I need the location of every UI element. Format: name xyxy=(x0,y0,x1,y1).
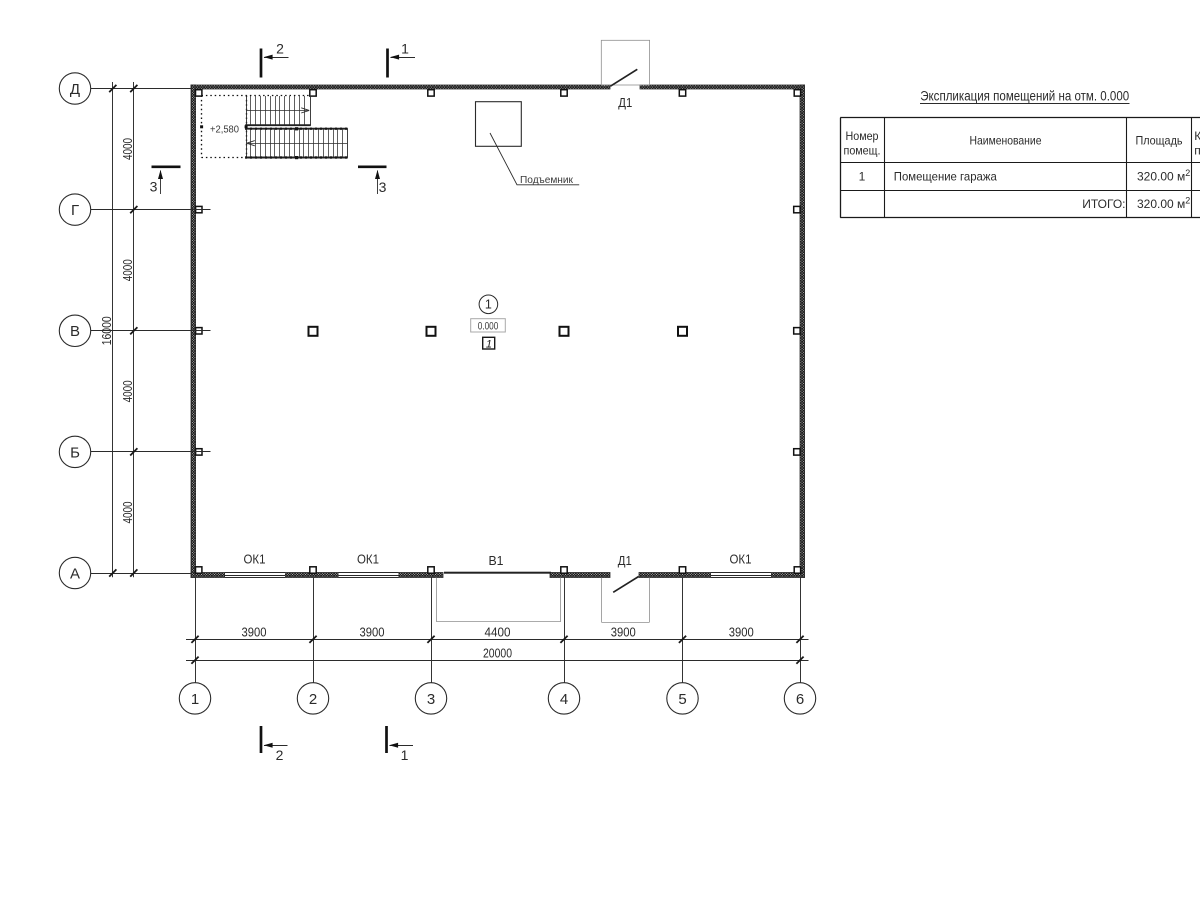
svg-text:Подъемник: Подъемник xyxy=(520,175,574,186)
svg-text:1: 1 xyxy=(191,691,199,708)
svg-text:Д: Д xyxy=(70,81,80,98)
svg-text:1: 1 xyxy=(401,747,409,763)
svg-text:20000: 20000 xyxy=(483,646,512,661)
svg-text:1: 1 xyxy=(401,41,409,57)
svg-text:4000: 4000 xyxy=(120,259,135,281)
svg-text:А: А xyxy=(70,565,80,582)
svg-text:2: 2 xyxy=(309,691,317,708)
svg-text:Наименование: Наименование xyxy=(970,133,1042,147)
svg-text:В1: В1 xyxy=(489,554,504,568)
svg-text:Д1: Д1 xyxy=(618,554,632,568)
svg-text:Помещение гаража: Помещение гаража xyxy=(894,170,997,184)
svg-text:4000: 4000 xyxy=(120,138,135,160)
svg-text:3: 3 xyxy=(427,691,435,708)
svg-text:3: 3 xyxy=(379,179,387,195)
svg-text:4000: 4000 xyxy=(120,501,135,523)
svg-text:5: 5 xyxy=(678,691,686,708)
svg-text:Площадь: Площадь xyxy=(1136,133,1183,147)
svg-text:ОК1: ОК1 xyxy=(357,553,379,567)
svg-text:Экспликация помещений на отм.: Экспликация помещений на отм. 0.000 xyxy=(920,89,1129,104)
svg-text:ИТОГО:: ИТОГО: xyxy=(1082,197,1125,211)
svg-text:320.00 м2: 320.00 м2 xyxy=(1137,196,1190,212)
svg-text:+2,580: +2,580 xyxy=(210,124,240,135)
svg-text:Номер: Номер xyxy=(846,129,879,143)
svg-text:Категория: Категория xyxy=(1194,129,1200,143)
svg-text:1: 1 xyxy=(485,298,492,312)
svg-text:2: 2 xyxy=(276,747,284,763)
svg-text:0.000: 0.000 xyxy=(478,320,499,332)
svg-text:3900: 3900 xyxy=(611,625,636,640)
svg-text:4400: 4400 xyxy=(485,625,511,640)
svg-text:1: 1 xyxy=(486,338,492,350)
svg-text:Б: Б xyxy=(70,444,80,461)
svg-text:В: В xyxy=(70,323,80,340)
svg-text:пожарной: пожарной xyxy=(1194,143,1200,157)
svg-text:1: 1 xyxy=(859,170,866,184)
svg-text:3900: 3900 xyxy=(360,625,385,640)
svg-text:4: 4 xyxy=(560,691,568,708)
svg-text:3900: 3900 xyxy=(242,625,267,640)
svg-text:3900: 3900 xyxy=(729,625,754,640)
svg-text:6: 6 xyxy=(796,691,804,708)
svg-text:ОК1: ОК1 xyxy=(244,553,266,567)
svg-text:Г: Г xyxy=(71,202,79,219)
svg-text:320.00 м2: 320.00 м2 xyxy=(1137,168,1190,184)
svg-text:помещ.: помещ. xyxy=(844,143,881,157)
svg-text:ОК1: ОК1 xyxy=(730,553,752,567)
svg-text:4000: 4000 xyxy=(120,380,135,402)
svg-text:Д1: Д1 xyxy=(618,96,632,110)
svg-text:16000: 16000 xyxy=(99,316,114,345)
svg-text:3: 3 xyxy=(150,179,158,195)
svg-text:2: 2 xyxy=(276,41,284,57)
